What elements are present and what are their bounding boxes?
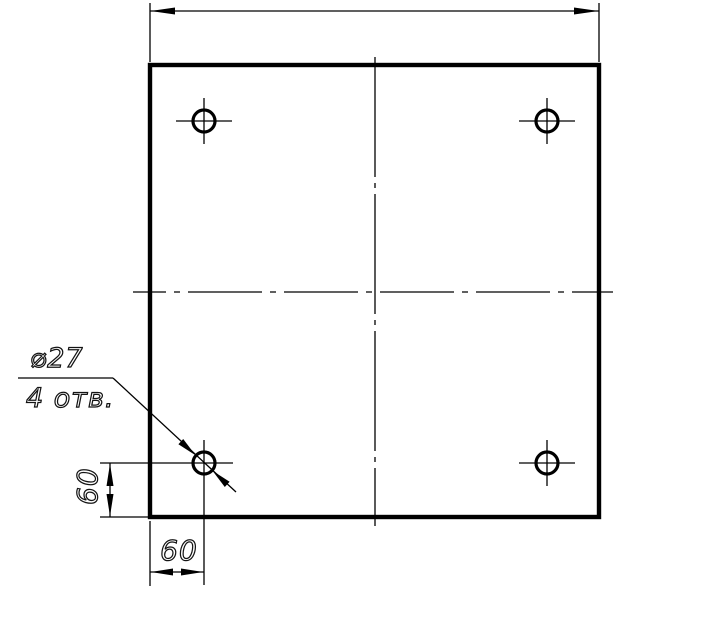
hole-diameter-label: ⌀27 bbox=[30, 343, 84, 374]
dimension-value: 60 bbox=[160, 534, 198, 567]
leader-arrowhead-icon bbox=[178, 439, 195, 455]
dim-arrowhead-right-icon bbox=[181, 569, 203, 576]
overall-width-dimension bbox=[150, 3, 599, 62]
holes bbox=[100, 98, 575, 585]
dim-arrowhead-left-icon bbox=[151, 569, 173, 576]
hole-offset-bottom-dimension: 60 bbox=[71, 463, 152, 517]
hole-callout: ⌀27 4 отв. bbox=[18, 343, 236, 492]
dim-arrowhead-right-icon bbox=[574, 8, 599, 15]
dimension-value: 60 bbox=[71, 467, 104, 505]
dim-arrowhead-up-icon bbox=[107, 464, 114, 486]
leader-arrowhead-opposite-icon bbox=[213, 471, 230, 487]
hole-top-right bbox=[519, 98, 575, 144]
hole-count-label: 4 отв. bbox=[26, 383, 115, 414]
hole-bottom-right bbox=[519, 440, 575, 486]
plate-drawing-svg: 60 60 ⌀27 4 отв. bbox=[0, 0, 713, 631]
hole-top-left bbox=[176, 98, 232, 144]
dim-arrowhead-left-icon bbox=[151, 8, 176, 15]
hole-offset-left-dimension: 60 bbox=[150, 521, 204, 586]
dim-arrowhead-down-icon bbox=[107, 494, 114, 516]
drawing-canvas: 60 60 ⌀27 4 отв. bbox=[0, 0, 713, 631]
